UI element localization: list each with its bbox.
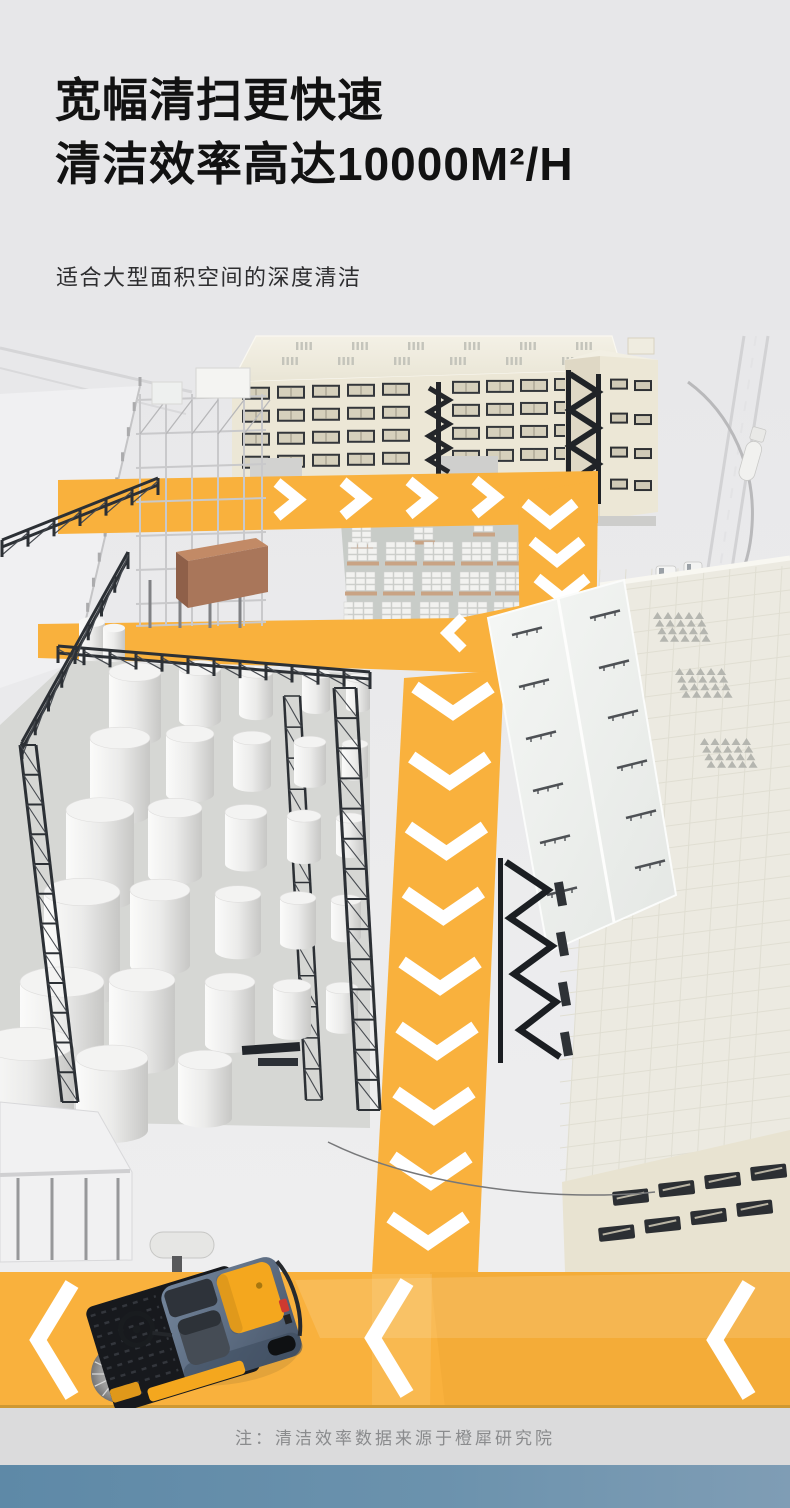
bottom-divider-bar (0, 1465, 790, 1508)
footer-note: 注：清洁效率数据来源于橙犀研究院 (0, 1408, 790, 1465)
title-line-2: 清洁效率高达10000M²/H (55, 132, 574, 196)
page-subtitle: 适合大型面积空间的深度清洁 (56, 260, 362, 292)
promo-page: 宽幅清扫更快速 清洁效率高达10000M²/H 适合大型面积空间的深度清洁 (0, 0, 790, 1508)
title-line-1: 宽幅清扫更快速 (55, 68, 574, 132)
factory-scene-illustration (0, 330, 790, 1410)
page-title: 宽幅清扫更快速 清洁效率高达10000M²/H (55, 68, 574, 196)
